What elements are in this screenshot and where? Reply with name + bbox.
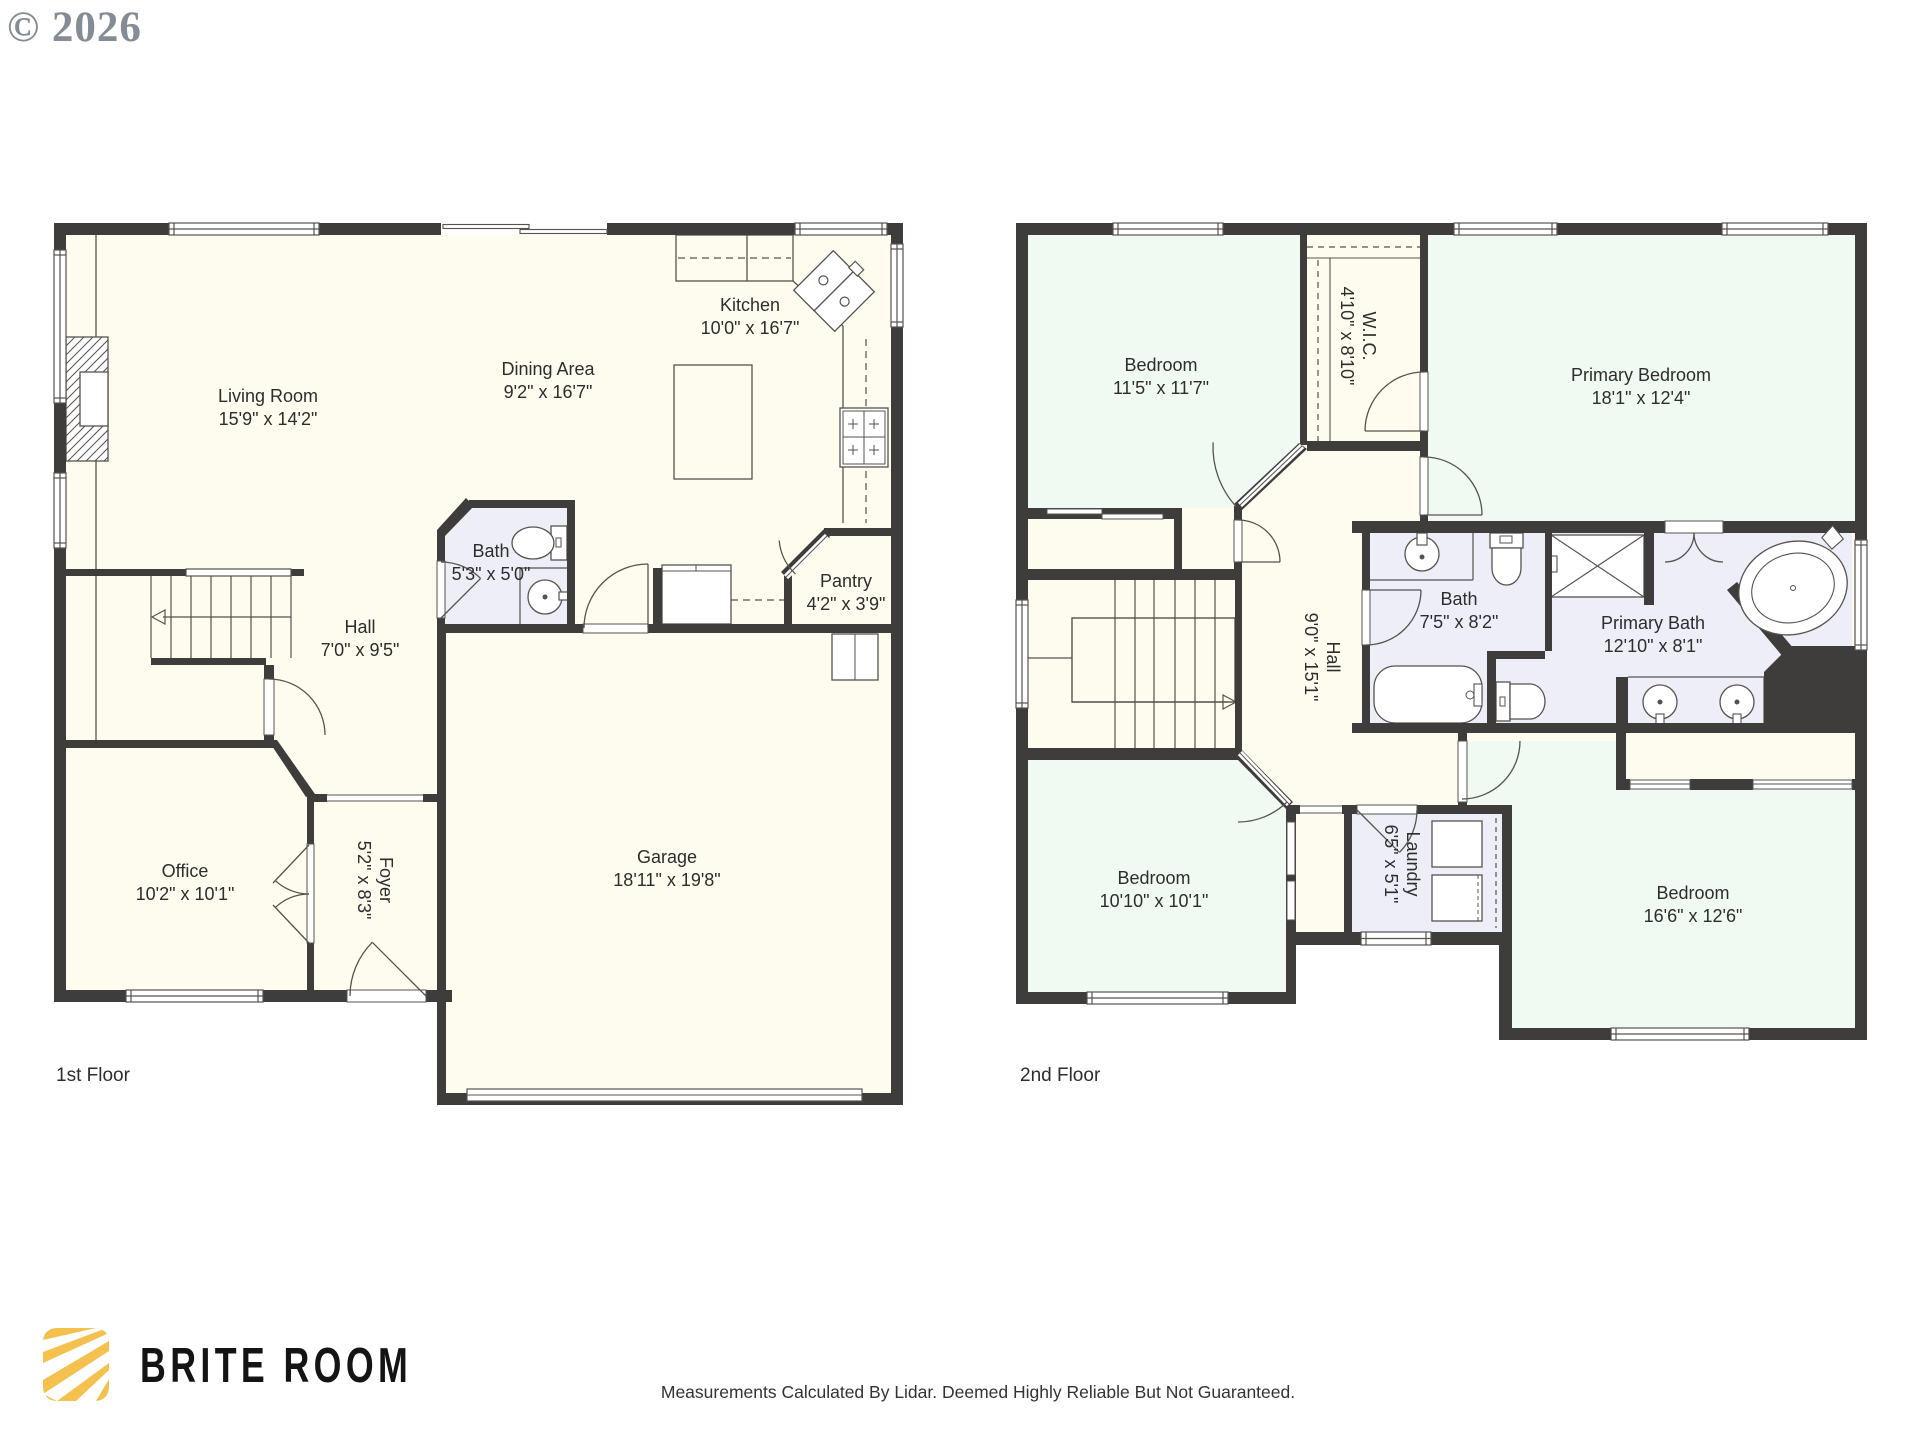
svg-text:Measurements Calculated By Lid: Measurements Calculated By Lidar. Deemed…	[661, 1382, 1295, 1402]
svg-text:Hall: Hall	[344, 617, 375, 637]
svg-text:18'1" x 12'4": 18'1" x 12'4"	[1592, 388, 1691, 408]
svg-text:Kitchen: Kitchen	[720, 295, 780, 315]
svg-text:10'0" x 16'7": 10'0" x 16'7"	[701, 318, 800, 338]
svg-text:4'10" x 8'10": 4'10" x 8'10"	[1337, 287, 1357, 386]
svg-text:9'0" x 15'1": 9'0" x 15'1"	[1301, 613, 1321, 702]
svg-text:18'11" x 19'8": 18'11" x 19'8"	[613, 870, 720, 890]
svg-text:Hall: Hall	[1323, 641, 1343, 672]
svg-text:Garage: Garage	[637, 847, 697, 867]
svg-text:Primary Bedroom: Primary Bedroom	[1571, 365, 1711, 385]
svg-text:12'10" x 8'1": 12'10" x 8'1"	[1604, 636, 1703, 656]
svg-text:Bedroom: Bedroom	[1117, 868, 1190, 888]
svg-text:10'10" x 10'1": 10'10" x 10'1"	[1100, 891, 1209, 911]
svg-text:Bedroom: Bedroom	[1124, 355, 1197, 375]
svg-text:Bedroom: Bedroom	[1656, 883, 1729, 903]
svg-text:Bath: Bath	[1440, 589, 1477, 609]
svg-text:BRITE ROOM: BRITE ROOM	[140, 1339, 412, 1394]
svg-text:Laundry: Laundry	[1403, 831, 1423, 896]
svg-text:Bath: Bath	[472, 541, 509, 561]
svg-text:7'5" x 8'2": 7'5" x 8'2"	[1420, 612, 1499, 632]
svg-text:4'2" x 3'9": 4'2" x 3'9"	[807, 594, 886, 614]
svg-text:W.I.C.: W.I.C.	[1359, 312, 1379, 361]
svg-text:2nd Floor: 2nd Floor	[1020, 1065, 1101, 1086]
svg-text:6'5" x 5'1": 6'5" x 5'1"	[1381, 825, 1401, 904]
svg-text:10'2" x 10'1": 10'2" x 10'1"	[136, 884, 235, 904]
svg-text:© 2026: © 2026	[7, 4, 142, 51]
svg-text:11'5" x 11'7": 11'5" x 11'7"	[1113, 378, 1209, 398]
svg-text:15'9" x 14'2": 15'9" x 14'2"	[219, 409, 318, 429]
svg-text:Foyer: Foyer	[376, 857, 396, 903]
svg-text:Pantry: Pantry	[820, 571, 872, 591]
svg-text:5'2" x 8'3": 5'2" x 8'3"	[354, 841, 374, 920]
svg-text:Living Room: Living Room	[218, 386, 318, 406]
svg-text:7'0" x 9'5": 7'0" x 9'5"	[321, 640, 400, 660]
svg-text:9'2" x 16'7": 9'2" x 16'7"	[504, 382, 593, 402]
svg-text:Primary Bath: Primary Bath	[1601, 613, 1705, 633]
svg-text:16'6" x 12'6": 16'6" x 12'6"	[1644, 906, 1743, 926]
svg-text:Dining Area: Dining Area	[501, 359, 595, 379]
svg-text:1st Floor: 1st Floor	[56, 1065, 131, 1086]
svg-text:5'3" x 5'0": 5'3" x 5'0"	[452, 564, 531, 584]
svg-text:Office: Office	[162, 861, 209, 881]
